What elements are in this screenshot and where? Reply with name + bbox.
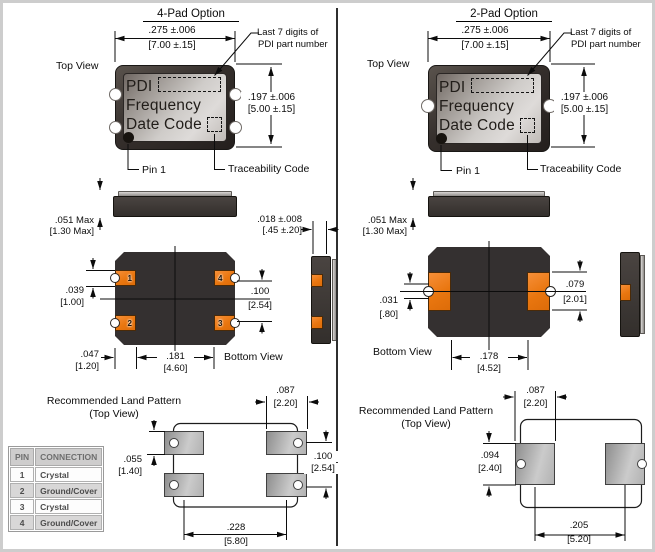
- pad-number: 3: [218, 319, 222, 328]
- pin-cell: 3: [10, 499, 34, 514]
- package-brand-text: PDI: [439, 78, 465, 97]
- dim-castellation: .018 ±.008 [.45 ±.20]: [246, 214, 302, 236]
- dim-width-mm: [7.00 ±.15]: [129, 40, 215, 52]
- castellation-notch: [229, 121, 242, 134]
- dim-land-span-in: .205: [560, 520, 598, 531]
- pin-connection-table: PIN CONNECTION 1 Crystal 2 Ground/Cover …: [8, 446, 104, 532]
- four-pad-side-view: [113, 196, 237, 217]
- top-view-label: Top View: [56, 60, 98, 72]
- dim-span-in: .181: [157, 351, 194, 362]
- table-row: 4 Ground/Cover: [10, 515, 102, 530]
- pad-number: 4: [218, 274, 222, 283]
- dim-land-pitch-in: .100: [307, 451, 339, 462]
- dim-pad-mm: [1.00]: [50, 297, 84, 308]
- pad-notch: [110, 273, 120, 283]
- table-row: 2 Ground/Cover: [10, 483, 102, 498]
- pin1-dot: [436, 133, 447, 144]
- bottom-view-label: Bottom View: [373, 346, 432, 358]
- dim-thickness-in: .051 Max: [36, 215, 94, 226]
- dim-height-mm: [5.00 ±.15]: [555, 104, 614, 116]
- bottom-view-label: Bottom View: [224, 351, 283, 363]
- dim-land-height-in: .094: [473, 450, 507, 461]
- dim-span-mm: [4.60]: [157, 363, 194, 374]
- land-notch: [637, 459, 647, 469]
- dim-pad-in: .039: [54, 285, 84, 296]
- last7-callout-line2: PDI part number: [571, 39, 641, 50]
- pin-cell: 2: [10, 483, 34, 498]
- land-notch: [169, 480, 179, 490]
- dim-land-span-mm: [5.80]: [214, 536, 258, 547]
- land-pattern-title-line1: Recommended Land Pattern: [350, 405, 502, 417]
- connection-cell: Crystal: [35, 499, 102, 514]
- dim-land-span-in: .228: [217, 522, 255, 533]
- pin1-dot: [123, 132, 134, 143]
- dim-pad-height-mm: [2.01]: [554, 294, 596, 305]
- edge-view-lid: [640, 255, 645, 334]
- pin1-label: Pin 1: [456, 165, 480, 177]
- castellation-notch: [421, 99, 435, 113]
- dim-land-height-mm: [1.40]: [108, 466, 142, 477]
- two-pad-side-view: [428, 196, 550, 217]
- traceability-dashed-box: [520, 118, 535, 133]
- connection-column-header: CONNECTION: [35, 448, 102, 466]
- package-brand-text: PDI: [126, 77, 152, 96]
- dim-height: .197 ±.006 [5.00 ±.15]: [241, 92, 302, 115]
- package-frequency-text: Frequency: [439, 97, 514, 116]
- package-drawing-page: PDI Frequency Date Code 1 4 2 3 PDI Freq…: [0, 0, 655, 552]
- dim-height-in: .197 ±.006: [555, 92, 614, 104]
- dim-edge-mm: [1.20]: [63, 361, 99, 372]
- dim-pad-height-in: .079: [557, 279, 593, 290]
- land-notch: [293, 438, 303, 448]
- pad-notch: [230, 318, 240, 328]
- part-number-dashed-box: [471, 78, 534, 93]
- dim-pad-in: .031: [368, 295, 398, 306]
- package-datecode-text: Date Code: [126, 115, 202, 134]
- land-pattern-title-line2: (Top View): [38, 408, 190, 420]
- dim-thickness-mm: [1.30 Max]: [349, 226, 407, 237]
- land-pattern-title-line1: Recommended Land Pattern: [38, 395, 190, 407]
- dim-thickness-in: .051 Max: [349, 215, 407, 226]
- dim-castellation-mm: [.45 ±.20]: [246, 225, 302, 236]
- edge-pad: [311, 274, 323, 287]
- pad-number: 2: [128, 319, 132, 328]
- four-pad-title: 4-Pad Option: [143, 8, 239, 22]
- dim-land-pitch-mm: [2.54]: [304, 463, 342, 474]
- dim-width-in: .275 ±.006: [129, 25, 215, 37]
- land-pattern-title-line2: (Top View): [350, 418, 502, 430]
- part-number-dashed-box: [158, 77, 221, 92]
- table-header-row: PIN CONNECTION: [10, 448, 102, 466]
- dim-thickness: .051 Max [1.30 Max]: [36, 215, 94, 237]
- dim-span-mm: [4.52]: [467, 363, 511, 374]
- dim-land-height-in: .055: [112, 454, 142, 465]
- castellation-notch: [229, 88, 242, 101]
- last7-callout-line1: Last 7 digits of: [570, 27, 631, 38]
- dim-pad-mm: [.80]: [368, 309, 398, 320]
- connection-cell: Ground/Cover: [35, 483, 102, 498]
- dim-span-in: .178: [470, 351, 508, 362]
- dim-height-mm: [5.00 ±.15]: [242, 104, 301, 116]
- dim-castellation-in: .018 ±.008: [246, 214, 302, 225]
- land-notch: [516, 459, 526, 469]
- edge-pad: [620, 284, 631, 301]
- traceability-dashed-box: [207, 117, 222, 132]
- dim-thickness-mm: [1.30 Max]: [36, 226, 94, 237]
- dim-height-in: .197 ±.006: [242, 92, 301, 104]
- land-notch: [169, 438, 179, 448]
- package-datecode-text: Date Code: [439, 116, 515, 135]
- traceability-label: Traceability Code: [228, 163, 309, 175]
- pin1-label: Pin 1: [142, 164, 166, 176]
- edge-pad: [311, 316, 323, 329]
- dim-height: .197 ±.006 [5.00 ±.15]: [554, 92, 615, 115]
- traceability-label: Traceability Code: [540, 163, 621, 175]
- dim-land-span-mm: [5.20]: [556, 534, 602, 545]
- castellation-notch: [109, 121, 122, 134]
- pin-column-header: PIN: [10, 448, 34, 466]
- pad-notch: [110, 318, 120, 328]
- dim-land-width-mm: [2.20]: [267, 398, 304, 409]
- four-pad-edge-view: [311, 256, 331, 344]
- pad-notch: [230, 273, 240, 283]
- dim-land-height-mm: [2.40]: [469, 463, 511, 474]
- top-view-label: Top View: [367, 58, 409, 70]
- table-row: 3 Crystal: [10, 499, 102, 514]
- land-notch: [293, 480, 303, 490]
- castellation-notch: [109, 88, 122, 101]
- two-pad-title: 2-Pad Option: [456, 8, 552, 22]
- dim-edge-in: .047: [67, 349, 99, 360]
- last7-callout-line1: Last 7 digits of: [257, 27, 318, 38]
- dim-pitch-in: .100: [243, 286, 277, 297]
- connection-cell: Crystal: [35, 467, 102, 482]
- pad-notch: [423, 286, 434, 297]
- pin-cell: 4: [10, 515, 34, 530]
- last7-callout-line2: PDI part number: [258, 39, 328, 50]
- dim-land-width-mm: [2.20]: [517, 398, 554, 409]
- connection-cell: Ground/Cover: [35, 515, 102, 530]
- dim-thickness: .051 Max [1.30 Max]: [349, 215, 407, 237]
- dim-land-width-in: .087: [269, 385, 302, 396]
- table-row: 1 Crystal: [10, 467, 102, 482]
- dim-pitch-mm: [2.54]: [240, 300, 280, 311]
- dim-land-width-in: .087: [519, 385, 552, 396]
- dim-width-mm: [7.00 ±.15]: [442, 40, 528, 52]
- four-pad-bottom-view-body: [115, 252, 235, 345]
- pad-number: 1: [128, 274, 132, 283]
- package-frequency-text: Frequency: [126, 96, 201, 115]
- pin-cell: 1: [10, 467, 34, 482]
- dim-width-in: .275 ±.006: [442, 25, 528, 37]
